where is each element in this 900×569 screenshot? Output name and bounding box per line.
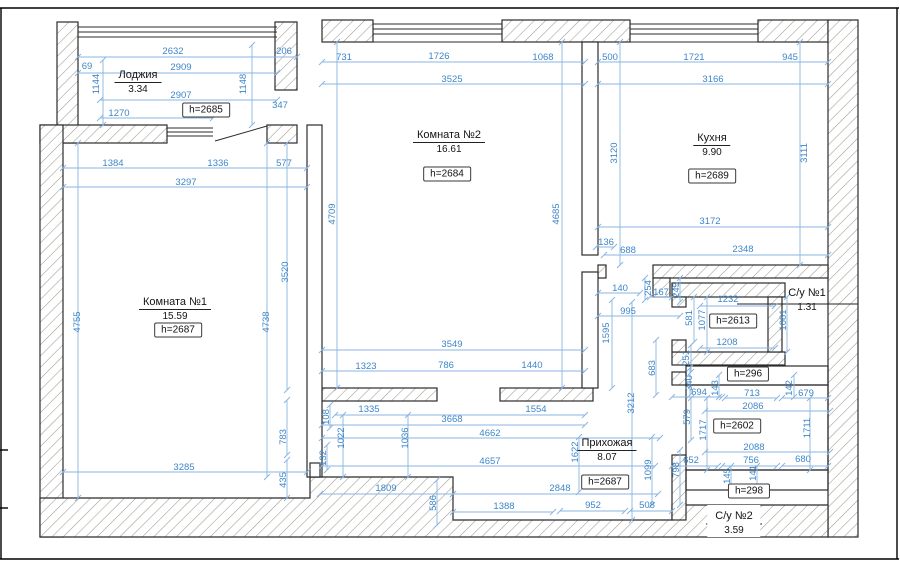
dimension-label: 3285 [173, 463, 194, 473]
balcony-door-leaf [215, 126, 267, 141]
dimension-label: 783 [279, 429, 289, 445]
room-label: Лоджия3.34 [115, 65, 162, 95]
room-label: Кухня9.90 [693, 128, 730, 158]
dimension-label: 2632 [162, 47, 183, 57]
dimension-label: 1036 [401, 427, 411, 448]
dimension-label: 1068 [532, 53, 553, 63]
dimension-label: 1335 [358, 405, 379, 415]
wall-room2-bottom-right [500, 388, 593, 401]
dimension-label: 586 [429, 495, 439, 511]
dimension-label: 3212 [627, 392, 637, 413]
dimension-label: 132 [319, 450, 329, 466]
dimension-label: 1595 [602, 322, 612, 343]
dimension-label: 3166 [702, 75, 723, 85]
dimension-label: 145 [723, 468, 733, 484]
wall-room2-bottom-left [322, 388, 437, 401]
dimension-label: 3549 [441, 340, 462, 350]
wall-loggia-bottom-pier [267, 125, 297, 143]
floor-plan: 2632206692909114411482907347127013841336… [0, 0, 900, 569]
dimension-label: 1323 [355, 362, 376, 372]
dimension-label: 347 [272, 101, 288, 111]
wall-top-pier2 [502, 20, 630, 42]
dimension-label: 579 [683, 409, 693, 425]
ceiling-height-box: h=2687 [581, 475, 629, 490]
dimension-label: 3120 [610, 142, 620, 163]
dimension-label: 136 [598, 238, 614, 248]
room-label: Комната №115.59 [139, 292, 211, 322]
dimension-label: 995 [620, 307, 636, 317]
dimension-label: 713 [744, 389, 760, 399]
ceiling-height-box: h=2685 [182, 103, 230, 118]
dimension-label: 577 [276, 159, 292, 169]
room-name: Кухня [693, 132, 730, 146]
dimension-label: 167 [653, 288, 669, 298]
dimension-label: 3111 [800, 143, 810, 163]
room-area: 3.59 [711, 525, 756, 536]
room-name: С/у №1 [784, 287, 829, 300]
dimension-label: 798 [672, 462, 682, 478]
dimension-label: 688 [620, 246, 636, 256]
dimension-label: 1440 [521, 361, 542, 371]
dimension-label: 1099 [644, 459, 654, 480]
dimension-label: 4755 [73, 311, 83, 332]
room-area: 3.34 [115, 84, 162, 95]
wall-bath1-left-stub1 [672, 297, 686, 307]
dimension-label: 2088 [743, 443, 764, 453]
dimension-label: 581 [685, 310, 695, 326]
dimension-label: 3525 [441, 75, 462, 85]
wall-top-pier3 [758, 20, 828, 42]
dimension-label: 1208 [716, 338, 737, 348]
dimension-label: 731 [336, 53, 352, 63]
dimension-label: 2086 [742, 402, 763, 412]
dimension-label: 3297 [175, 178, 196, 188]
dimension-label: 2348 [732, 245, 753, 255]
dimension-label: 69 [82, 62, 93, 72]
room-name: Комната №2 [413, 129, 485, 143]
wall-kitchen-bottom [653, 265, 828, 278]
dimension-label: 141 [749, 465, 759, 481]
dimension-label: 4738 [262, 311, 272, 332]
dimension-label: 1726 [428, 52, 449, 62]
ceiling-height-box: h=296 [727, 367, 769, 382]
dimension-label: 952 [585, 501, 601, 511]
dimension-label: 4662 [479, 429, 500, 439]
room-area: 16.61 [413, 144, 485, 155]
dimension-label: 1554 [525, 405, 546, 415]
walls [40, 20, 858, 537]
dimension-label: 1711 [803, 418, 813, 438]
dimension-label: 1388 [493, 502, 514, 512]
dimension-label: 206 [276, 47, 292, 57]
dimension-label: 1717 [699, 419, 709, 440]
dimension-label: 1336 [207, 159, 228, 169]
dimension-label: 108 [322, 409, 332, 425]
dimension-label: 142 [785, 380, 795, 396]
ceiling-height-box: h=2602 [713, 419, 761, 434]
room-area: 9.90 [693, 147, 730, 158]
dimension-label: 4657 [479, 457, 500, 467]
dimension-label: 1144 [92, 74, 102, 94]
dimension-label: 945 [782, 53, 798, 63]
room-label: Комната №216.61 [413, 125, 485, 155]
dimension-label: 435 [279, 472, 289, 488]
dimension-label: 683 [648, 360, 658, 376]
dimension-label: 1270 [108, 109, 129, 119]
room-name: С/у №2 [711, 510, 756, 523]
dimension-label: 1022 [337, 427, 347, 448]
room-label: С/у №23.59 [707, 505, 760, 537]
dimension-label: 3520 [281, 261, 291, 282]
dimension-label: 1077 [698, 309, 708, 330]
ceiling-height-box: h=2687 [154, 323, 202, 338]
dimension-label: 1384 [102, 159, 123, 169]
room-area: 15.59 [139, 311, 211, 322]
wall-top-pier1 [322, 20, 373, 42]
room-name: Лоджия [115, 69, 162, 83]
partition-room2-kitchen-upper [582, 42, 598, 255]
dimension-label: 694 [691, 388, 707, 398]
dimension-label: 1721 [683, 53, 704, 63]
room-name: Комната №1 [139, 296, 211, 310]
dimension-label: 500 [602, 53, 618, 63]
room-area: 1.31 [784, 302, 829, 313]
dimension-label: 1809 [375, 484, 396, 494]
dimension-label: 140 [612, 284, 628, 294]
dimension-label: 251 [682, 350, 692, 366]
dimension-label: 3668 [441, 415, 462, 425]
wall-left-outer [40, 125, 63, 537]
ceiling-height-box: h=2613 [709, 314, 757, 329]
dimension-label: 2907 [170, 91, 191, 101]
wall-right-outer [828, 20, 858, 537]
dimension-label: 143 [711, 380, 721, 396]
dimension-label: 680 [795, 455, 811, 465]
dimension-label: 2909 [170, 63, 191, 73]
dimension-label: 2848 [549, 484, 570, 494]
dimension-label: 508 [639, 501, 655, 511]
dimension-label: 245 [672, 282, 682, 298]
room-name: Прихожая [578, 437, 637, 451]
ceiling-height-box: h=2684 [423, 167, 471, 182]
dimension-label: 4709 [328, 203, 338, 224]
dimension-label: 1148 [239, 74, 249, 94]
dimension-label: 679 [798, 389, 814, 399]
dimension-label: 4685 [552, 203, 562, 224]
wall-kitchen-bottom-stub [598, 265, 606, 278]
ceiling-height-box: h=298 [728, 484, 770, 499]
dimension-label: 1232 [717, 295, 738, 305]
room-area: 8.07 [578, 452, 637, 463]
dimension-label: 3172 [699, 217, 720, 227]
ceiling-height-box: h=2689 [688, 169, 736, 184]
dimension-label: 652 [683, 456, 699, 466]
room-label: С/у №11.31 [784, 283, 829, 313]
room-label: Прихожая8.07 [578, 433, 637, 463]
dimension-label: 786 [438, 361, 454, 371]
partition-room1-room2 [307, 125, 322, 477]
